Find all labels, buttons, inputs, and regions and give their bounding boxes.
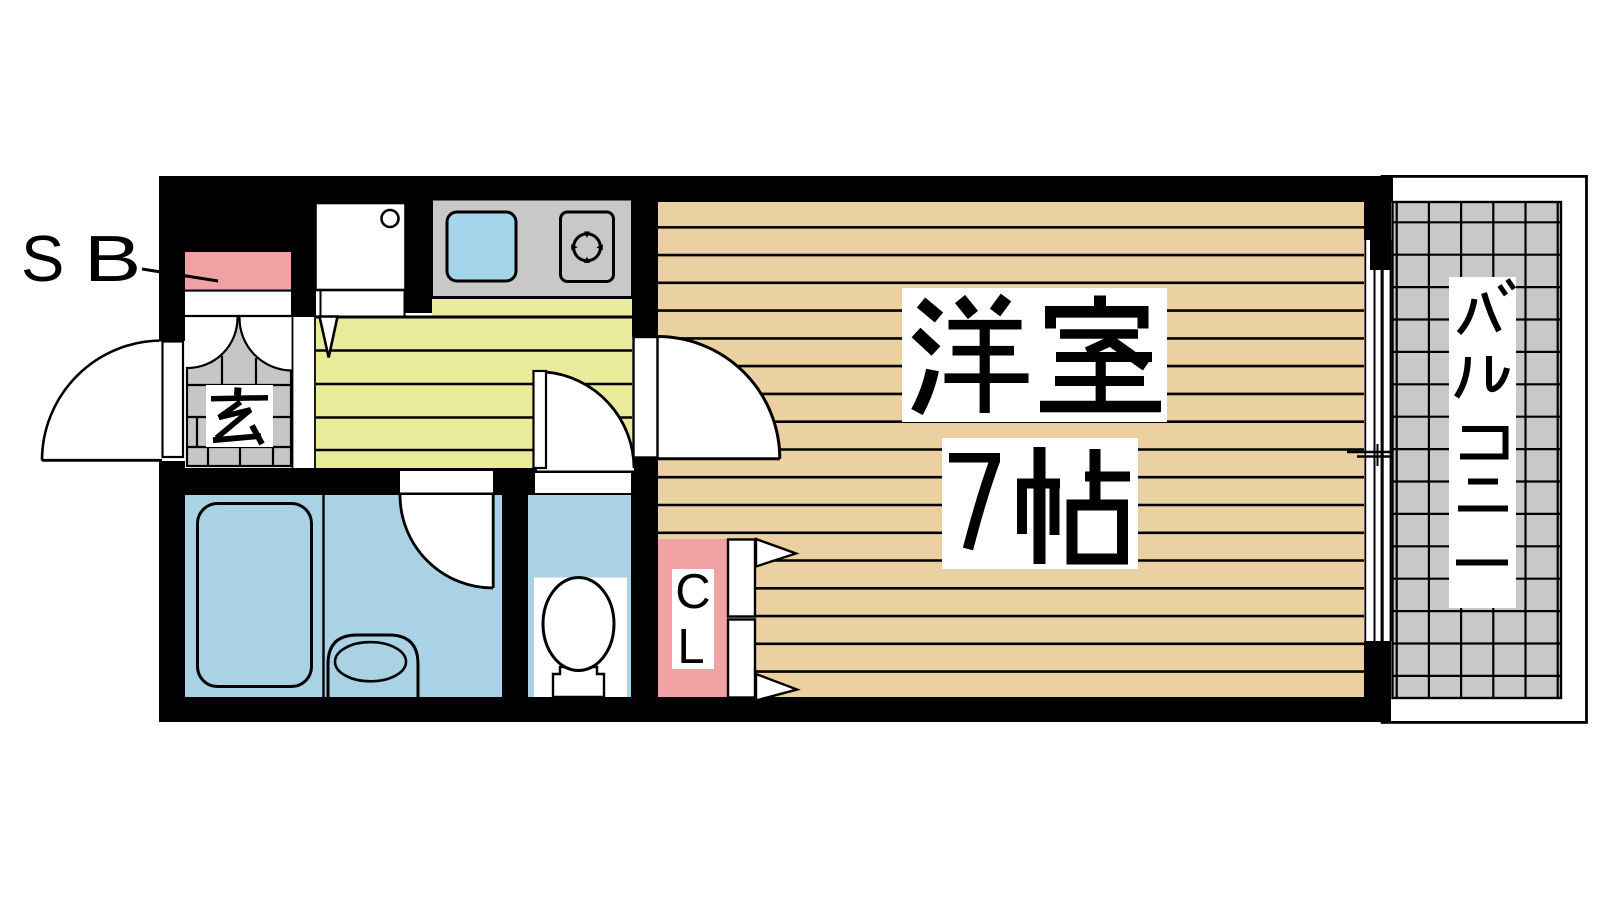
svg-text:L: L	[677, 620, 704, 674]
svg-text:S: S	[21, 222, 64, 295]
svg-text:C: C	[675, 565, 710, 619]
svg-text:B: B	[84, 223, 141, 295]
